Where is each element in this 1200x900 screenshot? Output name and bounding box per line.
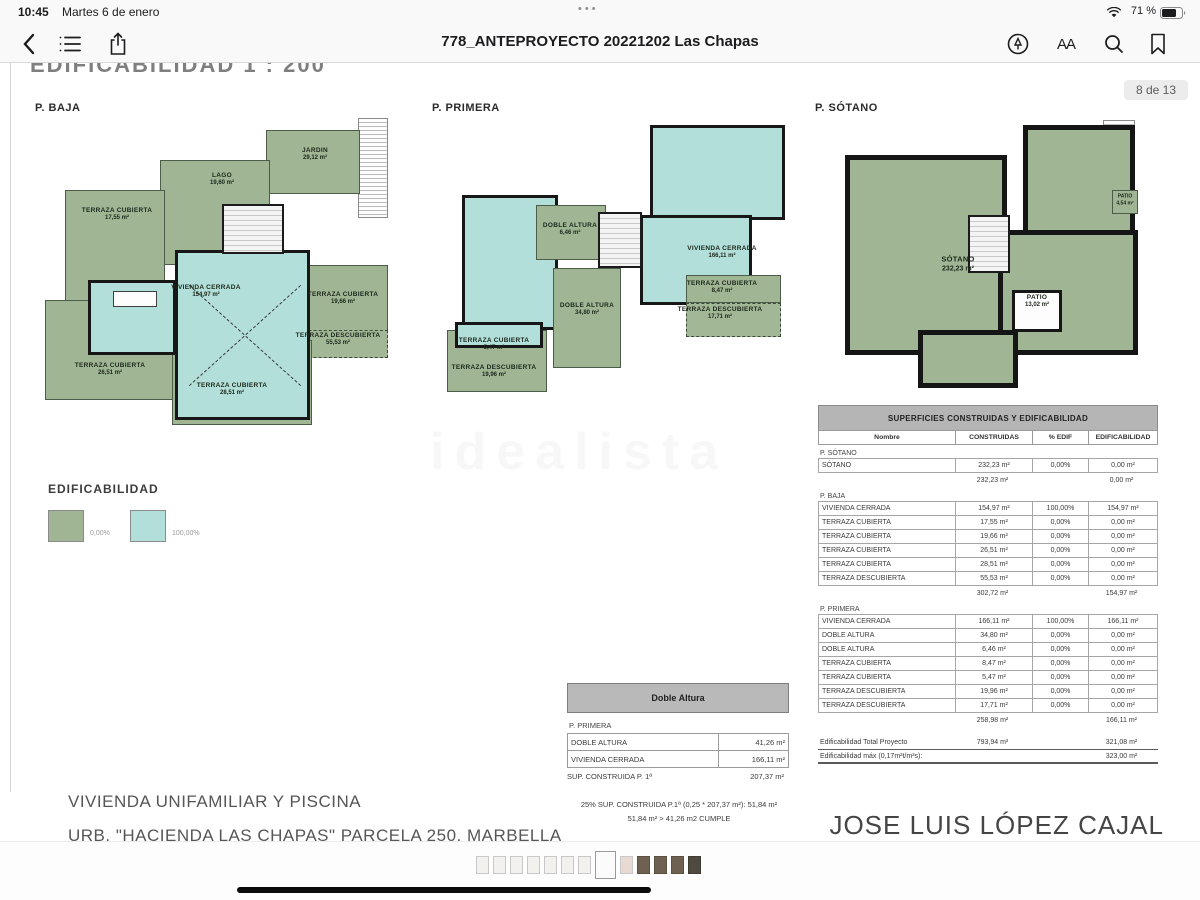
page-thumbnail-12[interactable] bbox=[671, 856, 684, 874]
table-cell: 100,00% bbox=[1032, 615, 1088, 628]
table-cell: 55,53 m² bbox=[955, 572, 1032, 585]
search-icon[interactable] bbox=[1100, 30, 1128, 58]
table-cell: 0,00 m² bbox=[1088, 459, 1157, 472]
table-cell: TERRAZA CUBIERTA bbox=[819, 558, 955, 571]
doble-altura-table: Doble Altura P. PRIMERA DOBLE ALTURA41,2… bbox=[567, 683, 789, 785]
wifi-icon bbox=[1106, 6, 1122, 24]
table-cell: 5,47 m² bbox=[955, 671, 1032, 684]
table-cell: 166,11 m² bbox=[1087, 713, 1156, 728]
table-row: DOBLE ALTURA34,80 m²0,00%0,00 m² bbox=[818, 628, 1158, 643]
pdf-page: EDIFICABILIDAD 1 : 200 8 de 13 idealista… bbox=[0, 62, 1200, 899]
table-header: Nombre CONSTRUIDAS % EDIF EDIFICABILIDAD bbox=[818, 430, 1158, 445]
battery-percent: 71 % bbox=[1131, 5, 1156, 17]
table-cell: 0,00% bbox=[1032, 544, 1088, 557]
clock: 10:45 bbox=[18, 5, 49, 19]
legend-swatch-0 bbox=[48, 510, 84, 542]
status-bar: 10:45 Martes 6 de enero ••• 71 % bbox=[0, 0, 1200, 24]
table-max-row: Edificabilidad máx (0,17m²t/m²s): 323,00… bbox=[818, 750, 1158, 764]
status-date: Martes 6 de enero bbox=[62, 5, 159, 19]
thumbnail-strip bbox=[0, 841, 1200, 900]
table-cell: 0,00 m² bbox=[1087, 473, 1156, 488]
table-subtotal-row: 232,23 m² 0,00 m² bbox=[818, 473, 1158, 488]
page-thumbnail-9[interactable] bbox=[620, 856, 633, 874]
table-cell: 302,72 m² bbox=[954, 586, 1031, 601]
watermark: idealista bbox=[430, 422, 728, 482]
page-thumbnail-6[interactable] bbox=[561, 856, 574, 874]
table-cell: SÓTANO bbox=[819, 459, 955, 472]
table-cell: 0,00 m² bbox=[1088, 544, 1157, 557]
page-thumbnail-7[interactable] bbox=[578, 856, 591, 874]
table-cell: TERRAZA DESCUBIERTA bbox=[819, 685, 955, 698]
table-cell: TERRAZA CUBIERTA bbox=[819, 657, 955, 670]
table-cell: 232,23 m² bbox=[954, 473, 1031, 488]
plan-title-sotano: P. SÓTANO bbox=[815, 102, 878, 114]
table-cell: 8,47 m² bbox=[955, 657, 1032, 670]
table-cell: 0,00% bbox=[1032, 530, 1088, 543]
stairs bbox=[222, 204, 284, 254]
battery-icon bbox=[1160, 6, 1186, 24]
table-cell: 0,00 m² bbox=[1088, 699, 1157, 712]
table-cell: 19,66 m² bbox=[955, 530, 1032, 543]
table-cell: 100,00% bbox=[1032, 502, 1088, 515]
table-row: DOBLE ALTURA6,46 m²0,00%0,00 m² bbox=[818, 642, 1158, 657]
plan-title-primera: P. PRIMERA bbox=[432, 102, 500, 114]
table-cell: TERRAZA CUBIERTA bbox=[819, 671, 955, 684]
multitask-dots-icon: ••• bbox=[578, 3, 599, 15]
text-size-button[interactable]: AA bbox=[1052, 30, 1080, 58]
page-thumbnail-1[interactable] bbox=[476, 856, 489, 874]
superficies-table: SUPERFICIES CONSTRUIDAS Y EDIFICABILIDAD… bbox=[818, 405, 1158, 764]
page-thumbnail-2[interactable] bbox=[493, 856, 506, 874]
plan-title-baja: P. BAJA bbox=[35, 102, 80, 114]
table-cell bbox=[1031, 713, 1087, 728]
table-cell: 0,00 m² bbox=[1088, 558, 1157, 571]
table-cell: VIVIENDA CERRADA bbox=[819, 615, 955, 628]
table-cell: 0,00 m² bbox=[1088, 629, 1157, 642]
page-indicator: 8 de 13 bbox=[1124, 80, 1188, 100]
table-cell: 0,00 m² bbox=[1088, 516, 1157, 529]
table-row: TERRAZA CUBIERTA5,47 m²0,00%0,00 m² bbox=[818, 670, 1158, 685]
table-row: VIVIENDA CERRADA166,11 m²100,00%166,11 m… bbox=[818, 614, 1158, 629]
table-cell: 154,97 m² bbox=[955, 502, 1032, 515]
table-cell: 0,00 m² bbox=[1088, 572, 1157, 585]
table-total-row: Edificabilidad Total Proyecto 793,94 m² … bbox=[818, 736, 1158, 750]
page-thumbnail-5[interactable] bbox=[544, 856, 557, 874]
table-row: TERRAZA DESCUBIERTA19,96 m²0,00%0,00 m² bbox=[818, 684, 1158, 699]
table-section-label: P. SÓTANO bbox=[818, 445, 1158, 459]
table-row: TERRAZA CUBIERTA28,51 m²0,00%0,00 m² bbox=[818, 557, 1158, 572]
table-row: TERRAZA CUBIERTA17,55 m²0,00%0,00 m² bbox=[818, 515, 1158, 530]
table-cell: 0,00 m² bbox=[1088, 530, 1157, 543]
table-cell: 0,00% bbox=[1032, 685, 1088, 698]
table-row: TERRAZA CUBIERTA26,51 m²0,00%0,00 m² bbox=[818, 543, 1158, 558]
table-cell: 166,11 m² bbox=[1088, 615, 1157, 628]
table-cell bbox=[1031, 473, 1087, 488]
page-thumbnail-11[interactable] bbox=[654, 856, 667, 874]
legend-title: EDIFICABILIDAD bbox=[48, 482, 159, 496]
table-cell: 0,00 m² bbox=[1088, 657, 1157, 670]
table-row: SÓTANO232,23 m²0,00%0,00 m² bbox=[818, 458, 1158, 473]
home-indicator[interactable] bbox=[237, 887, 651, 893]
table-cell: DOBLE ALTURA bbox=[819, 643, 955, 656]
table-cell: 0,00 m² bbox=[1088, 643, 1157, 656]
nav-bar: 778_ANTEPROYECTO 20221202 Las Chapas AA bbox=[0, 24, 1200, 63]
table-sum-row: SUP. CONSTRUIDA P. 1ª207,37 m² bbox=[567, 768, 789, 785]
table-section-label: P. PRIMERA bbox=[818, 601, 1158, 615]
table-cell: TERRAZA DESCUBIERTA bbox=[819, 699, 955, 712]
table-row: DOBLE ALTURA41,26 m² bbox=[567, 733, 789, 751]
table-cell bbox=[818, 473, 954, 488]
table-cell: 0,00% bbox=[1032, 459, 1088, 472]
table-row: VIVIENDA CERRADA166,11 m² bbox=[567, 750, 789, 768]
table-cell: TERRAZA CUBIERTA bbox=[819, 544, 955, 557]
table-cell: 0,00% bbox=[1032, 629, 1088, 642]
table-cell: TERRAZA DESCUBIERTA bbox=[819, 572, 955, 585]
table-cell: 232,23 m² bbox=[955, 459, 1032, 472]
table-cell: 258,98 m² bbox=[954, 713, 1031, 728]
table-row: TERRAZA DESCUBIERTA55,53 m²0,00%0,00 m² bbox=[818, 571, 1158, 586]
table-cell: 34,80 m² bbox=[955, 629, 1032, 642]
table-cell: TERRAZA CUBIERTA bbox=[819, 530, 955, 543]
page-thumbnail-4[interactable] bbox=[527, 856, 540, 874]
architect-name: JOSE LUIS LÓPEZ CAJAL bbox=[829, 810, 1164, 841]
table-cell: 0,00% bbox=[1032, 558, 1088, 571]
table-subtotal-row: 258,98 m² 166,11 m² bbox=[818, 713, 1158, 728]
table-cell: 154,97 m² bbox=[1087, 586, 1156, 601]
table-cell bbox=[818, 713, 954, 728]
table-cell: 0,00% bbox=[1032, 572, 1088, 585]
table-cell: 154,97 m² bbox=[1088, 502, 1157, 515]
table-cell: 0,00 m² bbox=[1088, 685, 1157, 698]
project-title: VIVIENDA UNIFAMILIAR Y PISCINA bbox=[68, 792, 361, 812]
markup-icon[interactable] bbox=[1004, 30, 1032, 58]
table-row: TERRAZA DESCUBIERTA17,71 m²0,00%0,00 m² bbox=[818, 698, 1158, 713]
table-cell: 0,00% bbox=[1032, 699, 1088, 712]
table-cell: 17,71 m² bbox=[955, 699, 1032, 712]
table-row: TERRAZA CUBIERTA8,47 m²0,00%0,00 m² bbox=[818, 656, 1158, 671]
table-cell bbox=[818, 586, 954, 601]
deck-hatch bbox=[358, 118, 388, 218]
table-cell: 26,51 m² bbox=[955, 544, 1032, 557]
table-cell: 0,00% bbox=[1032, 657, 1088, 670]
table-row: VIVIENDA CERRADA154,97 m²100,00%154,97 m… bbox=[818, 501, 1158, 516]
legend-swatch-100 bbox=[130, 510, 166, 542]
table-cell: 0,00% bbox=[1032, 671, 1088, 684]
doble-altura-section: P. PRIMERA bbox=[567, 713, 789, 734]
page-thumbnail-10[interactable] bbox=[637, 856, 650, 874]
table-cell: 166,11 m² bbox=[955, 615, 1032, 628]
table-cell: 17,55 m² bbox=[955, 516, 1032, 529]
table-cell: VIVIENDA CERRADA bbox=[819, 502, 955, 515]
table-cell: 0,00% bbox=[1032, 643, 1088, 656]
table-cell: 28,51 m² bbox=[955, 558, 1032, 571]
table-cell: DOBLE ALTURA bbox=[819, 629, 955, 642]
page-thumbnail-3[interactable] bbox=[510, 856, 523, 874]
table-cell: 0,00% bbox=[1032, 516, 1088, 529]
table-row: TERRAZA CUBIERTA19,66 m²0,00%0,00 m² bbox=[818, 529, 1158, 544]
doble-altura-title: Doble Altura bbox=[567, 683, 789, 713]
table-cell: TERRAZA CUBIERTA bbox=[819, 516, 955, 529]
page-edge-line bbox=[10, 62, 11, 792]
doble-altura-note2: 51,84 m² > 41,26 m2 CUMPLE bbox=[545, 814, 813, 823]
bookmark-button[interactable] bbox=[1144, 30, 1172, 58]
table-cell: 0,00 m² bbox=[1088, 671, 1157, 684]
table-cell bbox=[1031, 586, 1087, 601]
table-subtotal-row: 302,72 m² 154,97 m² bbox=[818, 586, 1158, 601]
table-cell: 6,46 m² bbox=[955, 643, 1032, 656]
table-title: SUPERFICIES CONSTRUIDAS Y EDIFICABILIDAD bbox=[818, 405, 1158, 431]
doble-altura-note1: 25% SUP. CONSTRUIDA P.1ª (0,25 * 207,37 … bbox=[545, 800, 813, 809]
table-cell: 19,96 m² bbox=[955, 685, 1032, 698]
page-thumbnail-13[interactable] bbox=[688, 856, 701, 874]
page-thumbnail-8[interactable] bbox=[595, 851, 616, 879]
stairs bbox=[598, 212, 642, 268]
table-section-label: P. BAJA bbox=[818, 488, 1158, 502]
